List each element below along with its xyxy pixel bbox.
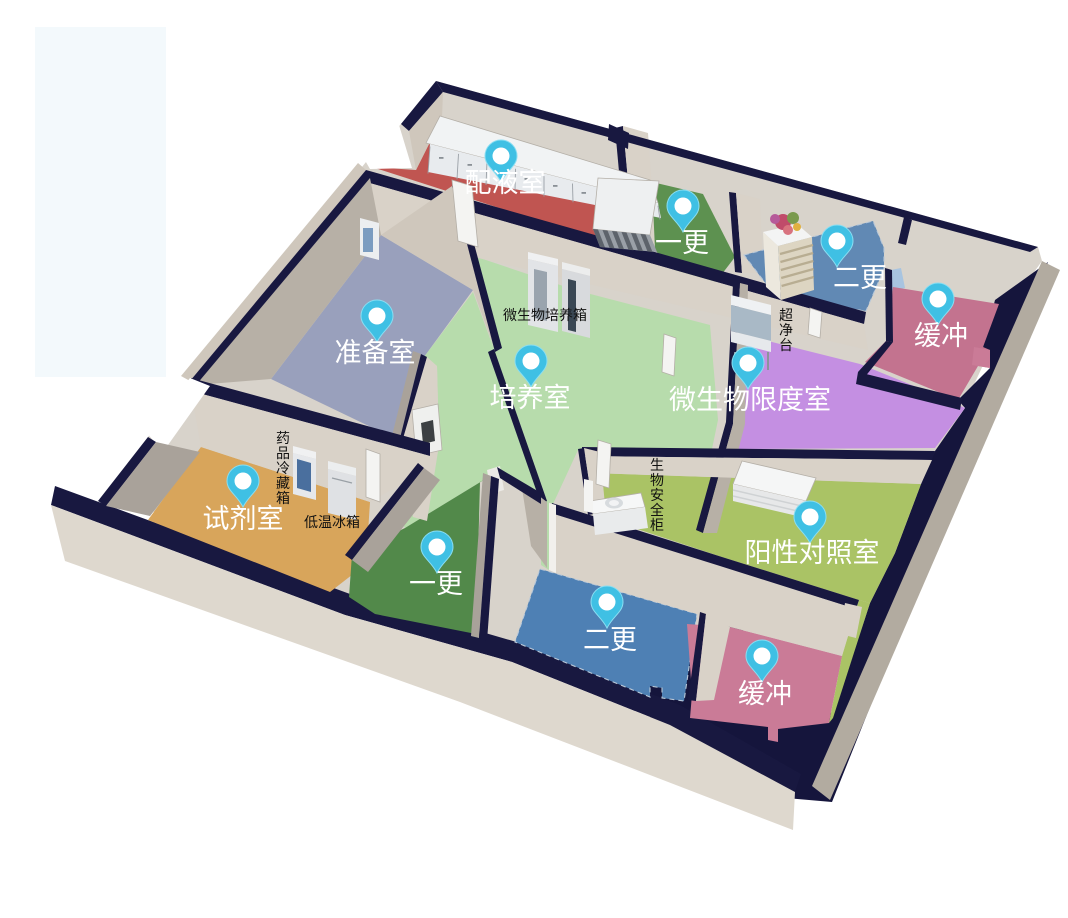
svg-text:冷: 冷 — [276, 460, 290, 476]
svg-text:配液室: 配液室 — [465, 168, 546, 198]
svg-text:品: 品 — [276, 445, 290, 461]
svg-text:试剂室: 试剂室 — [203, 504, 284, 534]
svg-text:阳性对照室: 阳性对照室 — [745, 538, 880, 568]
svg-text:藏: 藏 — [276, 475, 290, 491]
svg-text:培养室: 培养室 — [490, 383, 571, 413]
svg-text:缓冲: 缓冲 — [738, 679, 792, 709]
svg-text:微生物培养箱: 微生物培养箱 — [503, 307, 587, 323]
svg-text:台: 台 — [779, 337, 793, 353]
svg-text:安: 安 — [650, 487, 664, 503]
svg-text:箱: 箱 — [276, 490, 290, 506]
svg-text:微生物限度室: 微生物限度室 — [669, 385, 831, 415]
svg-text:准备室: 准备室 — [335, 338, 416, 368]
svg-text:超: 超 — [779, 307, 793, 323]
svg-text:全: 全 — [650, 502, 664, 518]
svg-text:一更: 一更 — [409, 569, 463, 599]
svg-text:生: 生 — [650, 457, 664, 473]
svg-text:净: 净 — [779, 322, 793, 338]
svg-text:物: 物 — [650, 472, 664, 488]
svg-text:一更: 一更 — [655, 228, 709, 258]
svg-text:二更: 二更 — [833, 263, 887, 293]
svg-text:二更: 二更 — [583, 625, 637, 655]
svg-text:缓冲: 缓冲 — [914, 321, 968, 351]
svg-text:柜: 柜 — [650, 517, 664, 533]
svg-text:药: 药 — [276, 430, 290, 446]
svg-text:低温冰箱: 低温冰箱 — [304, 514, 360, 530]
